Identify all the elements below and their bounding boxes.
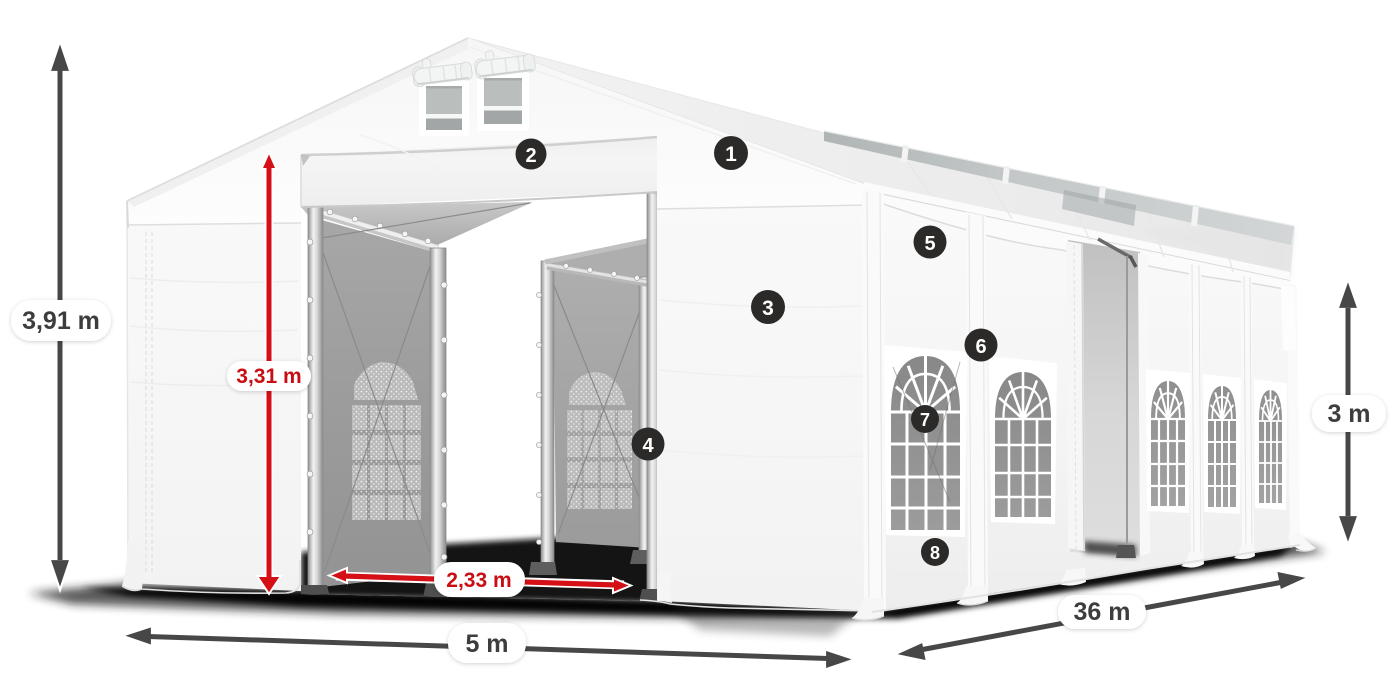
svg-text:2,33 m: 2,33 m (446, 569, 511, 592)
svg-text:3: 3 (762, 297, 774, 320)
svg-text:1: 1 (725, 143, 737, 166)
svg-text:4: 4 (642, 435, 654, 457)
svg-text:6: 6 (975, 336, 986, 358)
svg-text:5 m: 5 m (465, 630, 508, 658)
svg-text:7: 7 (920, 410, 930, 430)
svg-text:5: 5 (924, 233, 935, 255)
svg-text:8: 8 (930, 543, 940, 563)
svg-text:3,91 m: 3,91 m (22, 307, 100, 335)
svg-text:3,31 m: 3,31 m (236, 365, 301, 388)
svg-text:3 m: 3 m (1327, 400, 1370, 428)
svg-text:36 m: 36 m (1074, 598, 1131, 626)
svg-text:2: 2 (525, 145, 536, 167)
